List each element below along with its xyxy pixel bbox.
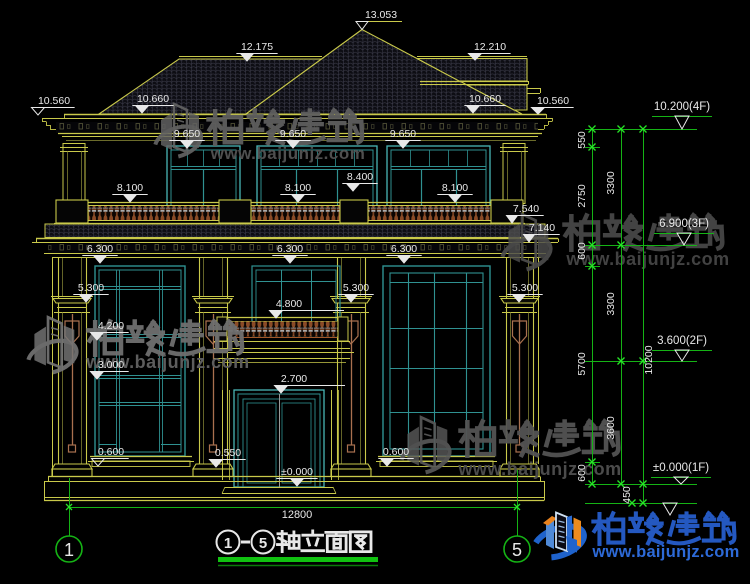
svg-text:10.660: 10.660 xyxy=(137,93,169,105)
svg-text:3.000: 3.000 xyxy=(98,359,124,371)
svg-text:www.baijunjz.com: www.baijunjz.com xyxy=(210,144,366,163)
svg-text:7.540: 7.540 xyxy=(513,203,539,215)
svg-text:600: 600 xyxy=(576,242,588,260)
svg-text:1: 1 xyxy=(224,535,232,552)
svg-text:3300: 3300 xyxy=(605,292,617,316)
svg-text:13.053: 13.053 xyxy=(365,9,397,21)
svg-text:5: 5 xyxy=(259,535,267,552)
svg-text:8.400: 8.400 xyxy=(347,171,373,183)
svg-text:6.300: 6.300 xyxy=(87,243,113,255)
svg-text:9.650: 9.650 xyxy=(174,128,200,140)
svg-text:8.100: 8.100 xyxy=(442,182,468,194)
svg-text:10200: 10200 xyxy=(643,345,655,374)
svg-text:10.560: 10.560 xyxy=(537,95,569,107)
svg-text:12.175: 12.175 xyxy=(241,41,273,53)
svg-text:0.600: 0.600 xyxy=(383,446,409,458)
svg-text:3600: 3600 xyxy=(605,416,617,440)
svg-text:5700: 5700 xyxy=(576,352,588,376)
svg-text:±0.000(1F): ±0.000(1F) xyxy=(653,462,709,474)
svg-text:3300: 3300 xyxy=(605,171,617,195)
svg-text:8.100: 8.100 xyxy=(117,182,143,194)
svg-text:550: 550 xyxy=(576,131,588,149)
svg-text:10.560: 10.560 xyxy=(38,95,70,107)
svg-text:5.300: 5.300 xyxy=(343,282,369,294)
svg-text:6.300: 6.300 xyxy=(277,243,303,255)
svg-text:7.140: 7.140 xyxy=(529,222,555,234)
svg-text:www.baijunjz.com: www.baijunjz.com xyxy=(591,543,739,561)
svg-text:9.650: 9.650 xyxy=(390,128,416,140)
svg-text:600: 600 xyxy=(576,464,588,482)
svg-text:5: 5 xyxy=(512,540,522,560)
svg-text:10.200(4F): 10.200(4F) xyxy=(654,101,710,113)
svg-text:2750: 2750 xyxy=(576,184,588,208)
svg-text:10.660: 10.660 xyxy=(469,93,501,105)
svg-text:12.210: 12.210 xyxy=(474,41,506,53)
svg-text:6.300: 6.300 xyxy=(391,243,417,255)
svg-text:5.300: 5.300 xyxy=(78,282,104,294)
svg-text:0.550: 0.550 xyxy=(215,447,241,459)
svg-text:5.300: 5.300 xyxy=(512,282,538,294)
svg-text:12800: 12800 xyxy=(282,509,313,521)
svg-text:±0.000: ±0.000 xyxy=(281,466,313,478)
svg-text:8.100: 8.100 xyxy=(285,182,311,194)
svg-text:2.700: 2.700 xyxy=(281,373,307,385)
svg-text:450: 450 xyxy=(621,486,633,504)
svg-text:4.800: 4.800 xyxy=(276,298,302,310)
svg-text:3.600(2F): 3.600(2F) xyxy=(657,335,707,347)
svg-text:6.900(3F): 6.900(3F) xyxy=(659,218,709,230)
svg-text:9.650: 9.650 xyxy=(280,128,306,140)
svg-text:4.200: 4.200 xyxy=(98,320,124,332)
svg-text:0.600: 0.600 xyxy=(98,446,124,458)
svg-text:1: 1 xyxy=(64,540,74,560)
